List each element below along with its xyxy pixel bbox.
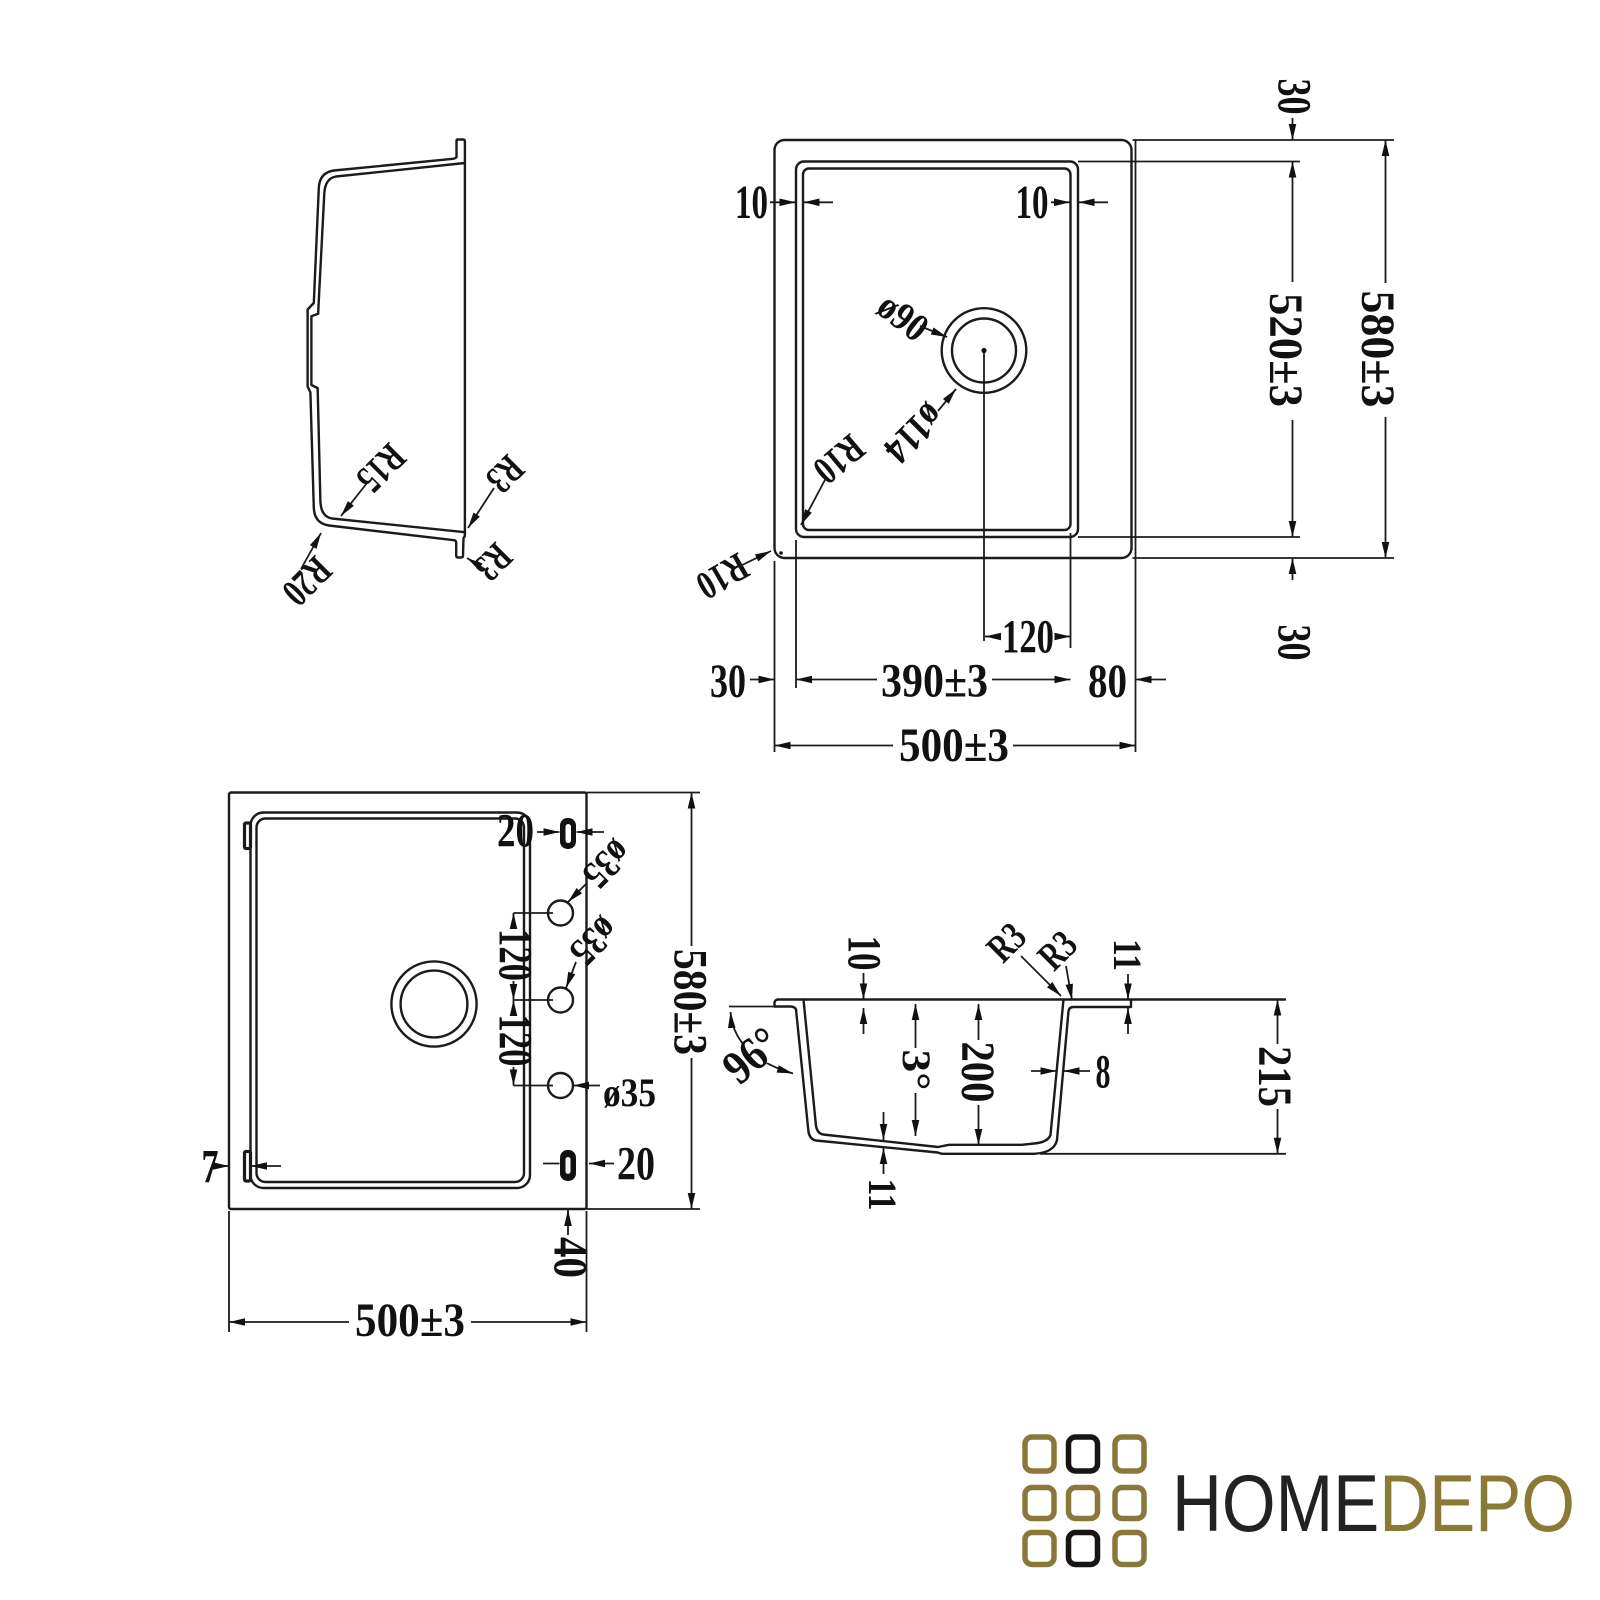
svg-text:30: 30: [1268, 79, 1321, 115]
svg-text:500±3: 500±3: [355, 1294, 465, 1347]
svg-text:7: 7: [202, 1141, 219, 1194]
svg-text:120: 120: [1002, 611, 1054, 664]
svg-text:ø35: ø35: [603, 1070, 656, 1115]
svg-text:30: 30: [710, 655, 746, 708]
svg-text:10: 10: [1016, 176, 1049, 229]
svg-text:10: 10: [838, 936, 891, 971]
svg-text:11: 11: [860, 1179, 905, 1211]
svg-text:10: 10: [735, 176, 768, 229]
svg-text:20: 20: [497, 805, 534, 858]
svg-text:80: 80: [1088, 655, 1127, 708]
svg-text:200: 200: [951, 1042, 1004, 1103]
svg-text:580±3: 580±3: [1351, 291, 1404, 408]
svg-text:120: 120: [489, 929, 542, 981]
svg-text:215: 215: [1248, 1046, 1301, 1107]
svg-text:HOMEDEPO: HOMEDEPO: [1172, 1459, 1575, 1549]
svg-text:120: 120: [489, 1015, 542, 1067]
svg-text:390±3: 390±3: [881, 655, 988, 708]
svg-text:500±3: 500±3: [899, 719, 1009, 772]
svg-text:40: 40: [544, 1237, 597, 1278]
svg-text:11: 11: [1105, 939, 1150, 971]
svg-text:3°: 3°: [894, 1050, 939, 1091]
svg-text:580±3: 580±3: [664, 949, 717, 1055]
svg-text:20: 20: [617, 1138, 655, 1191]
svg-text:8: 8: [1096, 1046, 1111, 1099]
svg-text:30: 30: [1268, 625, 1321, 661]
svg-text:520±3: 520±3: [1259, 293, 1312, 407]
